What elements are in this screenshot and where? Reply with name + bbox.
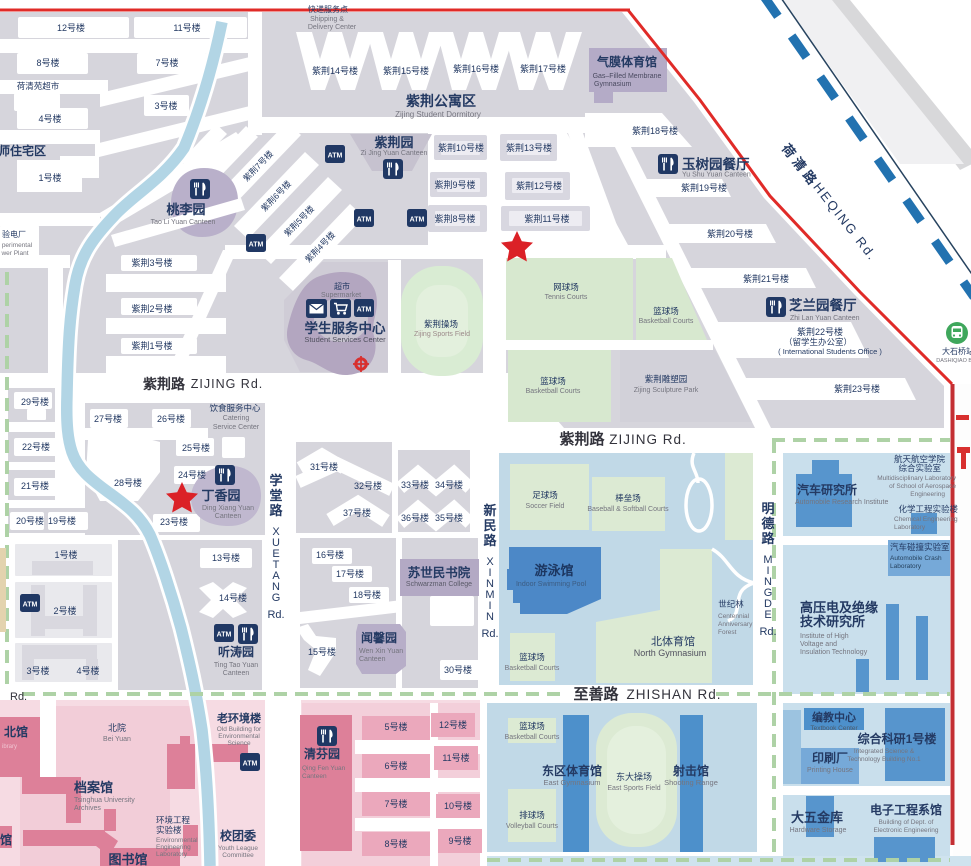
svg-text:路: 路 (483, 533, 497, 548)
svg-text:Science: Science (227, 740, 251, 747)
svg-text:Engineering: Engineering (910, 491, 945, 498)
svg-text:紫荆21号楼: 紫荆21号楼 (743, 273, 789, 284)
svg-text:E: E (764, 609, 771, 621)
svg-text:大五金库: 大五金库 (791, 810, 843, 825)
svg-text:北体育馆: 北体育馆 (651, 634, 695, 648)
svg-text:Supermarket: Supermarket (321, 292, 361, 299)
svg-text:Canteen: Canteen (302, 773, 327, 780)
svg-text:Qing Fen Yuan: Qing Fen Yuan (302, 765, 346, 772)
svg-text:G: G (272, 592, 281, 604)
svg-text:Integrated Science &: Integrated Science & (854, 748, 915, 755)
svg-text:Ting Tao Yuan: Ting Tao Yuan (214, 662, 258, 669)
svg-text:21号楼: 21号楼 (21, 480, 49, 491)
svg-text:Zijing Student Dormitory: Zijing Student Dormitory (395, 110, 481, 119)
svg-text:游泳馆: 游泳馆 (534, 563, 573, 578)
svg-text:丁香园: 丁香园 (201, 488, 240, 503)
svg-text:紫荆1号楼: 紫荆1号楼 (131, 340, 172, 351)
svg-text:紫荆雕塑园: 紫荆雕塑园 (645, 374, 688, 384)
svg-text:perimental: perimental (2, 242, 33, 249)
svg-text:紫荆22号楼: 紫荆22号楼 (797, 326, 843, 337)
svg-text:Centennial: Centennial (718, 613, 750, 620)
svg-text:实验楼: 实验楼 (156, 825, 182, 835)
svg-text:Institute of High: Institute of High (800, 633, 849, 640)
svg-text:Insulation Technology: Insulation Technology (800, 649, 868, 656)
svg-text:Environmental: Environmental (218, 733, 260, 740)
svg-text:北院: 北院 (108, 722, 126, 733)
svg-text:Student Services Center: Student Services Center (304, 335, 386, 344)
svg-text:芝兰园餐厅: 芝兰园餐厅 (789, 297, 857, 313)
svg-text:气膜体育馆: 气膜体育馆 (596, 54, 657, 69)
svg-text:网球场: 网球场 (553, 282, 579, 292)
svg-text:师住宅区: 师住宅区 (0, 143, 46, 158)
svg-text:Basketball Courts: Basketball Courts (639, 318, 694, 325)
svg-text:超市: 超市 (334, 281, 350, 291)
svg-text:Rd.: Rd. (759, 626, 776, 638)
svg-text:足球场: 足球场 (532, 490, 558, 500)
svg-text:( International Students Offic: ( International Students Office ) (778, 347, 882, 356)
svg-text:Tao Li Yuan Canteen: Tao Li Yuan Canteen (151, 219, 216, 226)
svg-text:Engineering: Engineering (156, 844, 191, 851)
svg-text:Zi Jing Yuan Canteen: Zi Jing Yuan Canteen (361, 150, 428, 157)
svg-text:紫荆路: 紫荆路 (559, 430, 605, 448)
svg-text:11号楼: 11号楼 (442, 752, 469, 763)
svg-text:紫荆路: 紫荆路 (143, 376, 186, 392)
svg-text:老环境楼: 老环境楼 (216, 711, 261, 725)
svg-text:紫荆11号楼: 紫荆11号楼 (524, 213, 569, 224)
svg-text:档案馆: 档案馆 (74, 780, 113, 795)
svg-text:12号楼: 12号楼 (439, 719, 467, 730)
svg-text:紫荆15号楼: 紫荆15号楼 (383, 65, 429, 76)
svg-text:Rd.: Rd. (10, 691, 27, 703)
svg-text:Canteen: Canteen (215, 513, 242, 520)
svg-text:16号楼: 16号楼 (316, 549, 344, 560)
svg-text:of School of Aerospace: of School of Aerospace (889, 483, 956, 490)
svg-text:31号楼: 31号楼 (310, 461, 338, 472)
svg-text:明: 明 (761, 501, 774, 516)
svg-text:34号楼: 34号楼 (435, 479, 463, 490)
svg-text:篮球场: 篮球场 (653, 306, 679, 316)
svg-text:Gymnasium: Gymnasium (594, 81, 632, 88)
svg-text:ZIJING Rd.: ZIJING Rd. (191, 377, 264, 391)
svg-text:堂: 堂 (269, 488, 282, 503)
svg-text:听涛园: 听涛园 (218, 644, 254, 659)
svg-text:1号楼: 1号楼 (38, 172, 61, 183)
svg-text:德: 德 (761, 516, 774, 531)
svg-text:综合科研1号楼: 综合科研1号楼 (858, 731, 937, 746)
svg-text:10号楼: 10号楼 (444, 800, 472, 811)
svg-text:Service Center: Service Center (213, 424, 260, 431)
svg-text:紫荆3号楼: 紫荆3号楼 (131, 257, 172, 268)
svg-text:紫荆13号楼: 紫荆13号楼 (506, 142, 552, 153)
svg-text:East Sports Field: East Sports Field (607, 785, 660, 792)
svg-text:Environmental: Environmental (156, 837, 198, 844)
svg-text:紫荆18号楼: 紫荆18号楼 (632, 125, 678, 136)
svg-text:Ding Xiang Yuan: Ding Xiang Yuan (202, 505, 254, 512)
svg-text:Bei Yuan: Bei Yuan (103, 736, 131, 743)
svg-text:饮食服务中心: 饮食服务中心 (209, 403, 261, 413)
svg-text:Catering: Catering (223, 415, 250, 422)
svg-text:Wen Xin Yuan: Wen Xin Yuan (359, 648, 403, 655)
svg-text:紫荆10号楼: 紫荆10号楼 (438, 142, 484, 153)
svg-text:Basketball Courts: Basketball Courts (505, 665, 560, 672)
svg-text:14号楼: 14号楼 (219, 592, 247, 603)
svg-text:紫荆23号楼: 紫荆23号楼 (834, 383, 880, 394)
svg-text:Forest: Forest (718, 629, 737, 636)
svg-text:快递服务点: 快递服务点 (308, 4, 348, 14)
svg-text:紫荆9号楼: 紫荆9号楼 (434, 179, 475, 190)
svg-text:清芬园: 清芬园 (304, 746, 340, 761)
svg-text:ZIJING Rd.: ZIJING Rd. (609, 432, 687, 447)
svg-text:新: 新 (483, 503, 496, 518)
svg-text:32号楼: 32号楼 (354, 480, 382, 491)
svg-text:3号楼: 3号楼 (26, 665, 49, 676)
svg-text:1号楼: 1号楼 (54, 549, 77, 560)
svg-text:18号楼: 18号楼 (353, 589, 381, 600)
svg-text:Tsinghua University: Tsinghua University (74, 797, 135, 804)
svg-text:ibrary: ibrary (2, 744, 17, 750)
svg-text:紫荆操场: 紫荆操场 (424, 319, 458, 329)
svg-text:篮球场: 篮球场 (519, 721, 545, 731)
svg-text:9号楼: 9号楼 (448, 835, 471, 846)
svg-text:紫荆14号楼: 紫荆14号楼 (312, 65, 358, 76)
svg-text:5号楼: 5号楼 (384, 721, 407, 732)
svg-text:Laboratory: Laboratory (894, 524, 926, 531)
svg-text:7号楼: 7号楼 (384, 798, 407, 809)
svg-text:3号楼: 3号楼 (154, 100, 177, 111)
svg-text:Basketball Courts: Basketball Courts (526, 388, 581, 395)
svg-text:29号楼: 29号楼 (21, 396, 49, 407)
svg-text:13号楼: 13号楼 (212, 552, 240, 563)
svg-text:ZHISHAN Rd.: ZHISHAN Rd. (626, 687, 721, 702)
svg-text:Electronic Engineering: Electronic Engineering (873, 827, 938, 834)
svg-text:17号楼: 17号楼 (336, 568, 364, 579)
svg-text:北馆: 北馆 (4, 724, 28, 739)
svg-text:Schwarzman College: Schwarzman College (406, 581, 472, 588)
svg-text:23号楼: 23号楼 (160, 516, 188, 527)
svg-text:Printing House: Printing House (807, 767, 853, 774)
svg-text:荷清苑超市: 荷清苑超市 (17, 81, 60, 91)
svg-text:学: 学 (269, 473, 282, 488)
svg-text:东大操场: 东大操场 (616, 771, 652, 782)
svg-text:Canteen: Canteen (359, 656, 386, 663)
svg-text:闻馨园: 闻馨园 (361, 630, 397, 645)
svg-text:wer Plant: wer Plant (0, 250, 28, 257)
svg-text:Multidisciplinary Laboratory: Multidisciplinary Laboratory (877, 475, 957, 482)
svg-text:Volleyball Courts: Volleyball Courts (506, 823, 559, 830)
svg-text:Baseball & Softball Courts: Baseball & Softball Courts (587, 506, 669, 513)
svg-text:Gas–Filled Membrane: Gas–Filled Membrane (593, 73, 662, 80)
svg-text:Textbook Center: Textbook Center (810, 725, 858, 732)
svg-text:汽车研究所: 汽车研究所 (797, 482, 857, 497)
svg-text:8号楼: 8号楼 (36, 57, 59, 68)
svg-text:桃李园: 桃李园 (166, 202, 205, 217)
svg-text:Soccer Field: Soccer Field (526, 503, 565, 510)
svg-text:Voltage and: Voltage and (800, 641, 837, 648)
svg-text:Rd.: Rd. (481, 628, 498, 640)
svg-text:化学工程实验楼: 化学工程实验楼 (898, 504, 958, 514)
svg-text:Rd.: Rd. (267, 609, 284, 621)
svg-text:East Gymnasium: East Gymnasium (543, 778, 600, 787)
svg-text:Laboratory: Laboratory (156, 851, 188, 858)
svg-text:排球场: 排球场 (519, 810, 545, 820)
svg-text:37号楼: 37号楼 (343, 507, 371, 518)
svg-text:4号楼: 4号楼 (38, 113, 61, 124)
svg-text:紫荆17号楼: 紫荆17号楼 (520, 63, 566, 74)
svg-text:North Gymnasium: North Gymnasium (634, 648, 707, 658)
svg-text:篮球场: 篮球场 (540, 376, 566, 386)
svg-text:4号楼: 4号楼 (76, 665, 99, 676)
svg-text:Basketball Courts: Basketball Courts (505, 734, 560, 741)
svg-text:Laboratory: Laboratory (890, 563, 922, 570)
svg-text:Anniversary: Anniversary (718, 621, 753, 628)
svg-text:20号楼: 20号楼 (16, 515, 44, 526)
svg-text:2号楼: 2号楼 (53, 605, 76, 616)
svg-text:35号楼: 35号楼 (435, 512, 463, 523)
svg-text:15号楼: 15号楼 (308, 646, 336, 657)
svg-text:学生服务中心: 学生服务中心 (305, 320, 386, 336)
svg-text:19号楼: 19号楼 (48, 515, 76, 526)
svg-text:馆: 馆 (0, 832, 12, 847)
svg-text:汽车碰撞实验室: 汽车碰撞实验室 (890, 542, 950, 552)
svg-text:26号楼: 26号楼 (157, 413, 185, 424)
svg-text:Zijing Sculpture Park: Zijing Sculpture Park (634, 387, 699, 394)
svg-text:棒垒场: 棒垒场 (615, 493, 641, 503)
svg-text:高压电及绝缘: 高压电及绝缘 (800, 600, 878, 615)
svg-text:射击馆: 射击馆 (672, 763, 709, 778)
svg-text:至善路: 至善路 (573, 685, 619, 703)
svg-text:苏世民书院: 苏世民书院 (408, 565, 471, 580)
svg-text:环境工程: 环境工程 (156, 815, 191, 825)
svg-text:11号楼: 11号楼 (173, 22, 200, 33)
svg-text:22号楼: 22号楼 (22, 441, 50, 452)
svg-text:电子工程系馆: 电子工程系馆 (870, 802, 942, 817)
svg-text:紫荆2号楼: 紫荆2号楼 (131, 303, 172, 314)
svg-text:验电厂: 验电厂 (2, 229, 26, 239)
svg-text:篮球场: 篮球场 (519, 652, 545, 662)
svg-text:36号楼: 36号楼 (401, 512, 429, 523)
svg-text:玉树园餐厅: 玉树园餐厅 (682, 156, 750, 172)
svg-text:Technology Building No.1: Technology Building No.1 (847, 756, 921, 763)
svg-text:12号楼: 12号楼 (57, 22, 85, 33)
svg-text:Delivery Center: Delivery Center (308, 24, 357, 31)
svg-text:Committee: Committee (222, 852, 254, 859)
svg-text:民: 民 (483, 518, 496, 533)
svg-text:Shooting Range: Shooting Range (664, 778, 718, 787)
svg-text:25号楼: 25号楼 (182, 442, 210, 453)
svg-text:（留学生办公室）: （留学生办公室） (784, 337, 852, 347)
svg-text:编教中心: 编教中心 (812, 710, 856, 724)
svg-text:路: 路 (761, 531, 775, 546)
svg-text:Yu Shu Yuan Canteen: Yu Shu Yuan Canteen (682, 172, 751, 179)
svg-text:Automobile Crash: Automobile Crash (890, 555, 942, 562)
svg-text:紫荆公寓区: 紫荆公寓区 (406, 93, 476, 109)
svg-text:24号楼: 24号楼 (178, 469, 206, 480)
svg-text:Zhi Lan Yuan Canteen: Zhi Lan Yuan Canteen (790, 315, 860, 322)
svg-text:大石桥站: 大石桥站 (942, 346, 971, 356)
svg-text:Zijing Sports Field: Zijing Sports Field (414, 331, 470, 338)
svg-text:技术研究所: 技术研究所 (800, 614, 865, 629)
svg-text:图书馆: 图书馆 (108, 852, 147, 866)
svg-text:Building of Dept. of: Building of Dept. of (879, 819, 934, 826)
svg-text:Archives: Archives (74, 805, 101, 812)
svg-text:DASHIQIAO BUS: DASHIQIAO BUS (936, 358, 971, 364)
svg-text:Indoor Swimming Pool: Indoor Swimming Pool (516, 581, 586, 588)
svg-text:27号楼: 27号楼 (94, 413, 122, 424)
svg-text:33号楼: 33号楼 (401, 479, 429, 490)
svg-text:6号楼: 6号楼 (384, 760, 407, 771)
svg-text:28号楼: 28号楼 (114, 477, 142, 488)
svg-text:30号楼: 30号楼 (444, 664, 472, 675)
svg-text:Old Building for: Old Building for (217, 726, 262, 733)
svg-text:Automobile Research Institute: Automobile Research Institute (795, 499, 888, 506)
svg-text:Canteen: Canteen (223, 670, 250, 677)
svg-text:紫荆20号楼: 紫荆20号楼 (707, 228, 753, 239)
svg-text:东区体育馆: 东区体育馆 (542, 763, 602, 778)
svg-text:7号楼: 7号楼 (155, 57, 178, 68)
svg-text:紫荆19号楼: 紫荆19号楼 (681, 182, 727, 193)
svg-text:校团委: 校团委 (220, 828, 257, 843)
svg-text:Tennis Courts: Tennis Courts (545, 294, 588, 301)
svg-text:综合实验室: 综合实验室 (898, 463, 941, 473)
svg-text:紫荆16号楼: 紫荆16号楼 (453, 63, 499, 74)
svg-text:紫荆园: 紫荆园 (374, 135, 413, 150)
svg-text:Hardware Storage: Hardware Storage (790, 827, 847, 834)
svg-text:Shipping &: Shipping & (310, 16, 344, 23)
svg-text:Youth League: Youth League (218, 845, 258, 852)
svg-text:紫荆8号楼: 紫荆8号楼 (434, 213, 475, 224)
svg-text:8号楼: 8号楼 (384, 838, 407, 849)
svg-text:N: N (486, 611, 494, 623)
svg-text:印刷厂: 印刷厂 (812, 751, 848, 765)
svg-text:紫荆12号楼: 紫荆12号楼 (516, 180, 562, 191)
svg-text:路: 路 (269, 503, 283, 518)
svg-text:Chemical Engineering: Chemical Engineering (894, 516, 958, 523)
svg-text:世纪林: 世纪林 (718, 599, 744, 609)
